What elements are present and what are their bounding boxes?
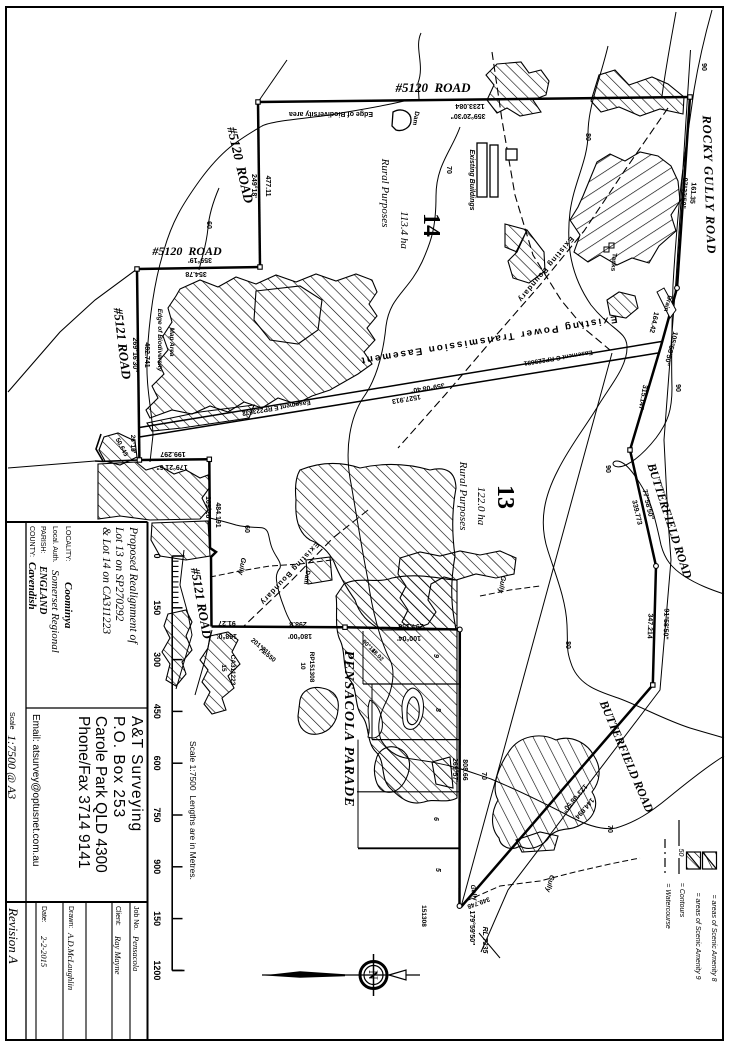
svg-text:180°00': 180°00'	[288, 632, 312, 640]
svg-text:= Contours: = Contours	[678, 883, 685, 918]
svg-text:LOCALITY:: LOCALITY:	[64, 526, 71, 561]
svg-text:50: 50	[677, 849, 684, 857]
svg-text:Scale 1:7500 Lengths are in M: Scale 1:7500 Lengths are in Metres.	[188, 741, 198, 880]
svg-text:RL 7335: RL 7335	[481, 927, 488, 954]
svg-text:249°18': 249°18'	[250, 174, 258, 198]
svg-text:750: 750	[152, 807, 162, 822]
svg-text:& Lot 14 on CA311223: & Lot 14 on CA311223	[100, 527, 112, 634]
svg-text:= areas of Scenic Amenity 8: = areas of Scenic Amenity 8	[710, 894, 717, 981]
svg-text:14: 14	[418, 213, 444, 237]
svg-text:70: 70	[606, 825, 613, 833]
svg-text:PENSACOLA PARADE: PENSACOLA PARADE	[341, 651, 356, 808]
svg-text:A.D.McLaughlin: A.D.McLaughlin	[66, 932, 76, 990]
svg-text:90: 90	[700, 63, 707, 71]
svg-text:Scale: Scale	[8, 712, 15, 730]
svg-text:Map Area: Map Area	[168, 327, 175, 356]
svg-text:179°59'50": 179°59'50"	[468, 910, 476, 945]
svg-text:150: 150	[152, 600, 162, 615]
svg-text:269°57': 269°57'	[451, 758, 459, 782]
svg-text:#5120 ROAD: #5120 ROAD	[151, 244, 222, 258]
svg-text:5: 5	[434, 868, 441, 872]
svg-text:100°04': 100°04'	[397, 634, 421, 642]
svg-text:70: 70	[480, 772, 487, 780]
svg-text:298.8: 298.8	[289, 620, 307, 627]
svg-text:Phone/Fax 3714 9141: Phone/Fax 3714 9141	[75, 716, 92, 869]
svg-text:RP151308: RP151308	[308, 652, 315, 683]
svg-text:Email: atsurvey@optusnet.com.a: Email: atsurvey@optusnet.com.au	[30, 714, 41, 866]
svg-text:Drawn:: Drawn:	[67, 906, 74, 928]
svg-text:482.741: 482.741	[143, 342, 150, 367]
svg-text:1:7500 @ A3: 1:7500 @ A3	[5, 735, 19, 799]
svg-text:Ray Mayne: Ray Mayne	[113, 935, 123, 975]
svg-text:9: 9	[432, 654, 439, 658]
svg-text:60: 60	[205, 221, 212, 229]
svg-text:122.0 ha: 122.0 ha	[475, 487, 487, 526]
svg-text:900: 900	[152, 859, 162, 874]
svg-text:Carole Park QLD 4300: Carole Park QLD 4300	[92, 716, 109, 873]
svg-text:90: 90	[604, 465, 611, 473]
svg-text:150: 150	[152, 911, 162, 926]
svg-text:199.297: 199.297	[160, 450, 185, 457]
svg-text:294.156: 294.156	[398, 622, 423, 629]
svg-text:CA311223: CA311223	[229, 655, 236, 686]
svg-text:Somerset Regional: Somerset Regional	[49, 570, 61, 653]
svg-text:90: 90	[674, 384, 681, 392]
svg-text:60: 60	[243, 525, 250, 533]
svg-text:26°19': 26°19'	[129, 435, 137, 454]
svg-text:Proposed Realignment of: Proposed Realignment of	[127, 526, 139, 645]
svg-text:15: 15	[220, 664, 227, 672]
svg-text:151308: 151308	[420, 905, 427, 927]
svg-text:808.66: 808.66	[461, 759, 468, 781]
svg-text:80: 80	[584, 133, 591, 141]
svg-text:P.O. Box 253: P.O. Box 253	[110, 716, 127, 818]
svg-text:= Watercourse: = Watercourse	[664, 883, 671, 929]
svg-text:Cavendish: Cavendish	[26, 562, 38, 610]
svg-text:13: 13	[492, 485, 518, 509]
svg-text:600: 600	[152, 756, 162, 771]
svg-text:91.27: 91.27	[218, 619, 236, 626]
svg-text:359°19': 359°19'	[188, 256, 212, 264]
svg-text:Job No.: Job No.	[132, 906, 139, 930]
svg-text:168°0': 168°0'	[217, 632, 237, 640]
svg-text:Coominya: Coominya	[62, 582, 74, 629]
svg-text:Edge of Biodiversity area: Edge of Biodiversity area	[289, 110, 373, 117]
svg-text:Rural Purposes: Rural Purposes	[379, 158, 391, 228]
svg-text:Lot 13 on SP270292: Lot 13 on SP270292	[113, 526, 125, 621]
svg-text:PARISH:: PARISH:	[39, 526, 46, 554]
svg-text:A&T Surveying: A&T Surveying	[128, 716, 145, 832]
svg-text:Date:: Date:	[40, 906, 47, 923]
svg-text:Pensacola: Pensacola	[131, 935, 141, 971]
svg-text:0: 0	[152, 553, 162, 558]
svg-text:179°21'6": 179°21'6"	[156, 463, 187, 471]
svg-text:Client:: Client:	[114, 906, 121, 926]
svg-text:161.35: 161.35	[688, 182, 696, 204]
svg-text:354.78: 354.78	[185, 270, 207, 277]
svg-text:Rural Purposes: Rural Purposes	[457, 461, 469, 531]
svg-text:80: 80	[564, 641, 571, 649]
svg-text:169°26': 169°26'	[204, 496, 212, 520]
svg-text:450: 450	[152, 704, 162, 719]
svg-text:Local. Auth.: Local. Auth.	[51, 526, 58, 563]
svg-text:113.4 ha: 113.4 ha	[398, 211, 410, 249]
svg-text:= areas of Scenic Amenity 9: = areas of Scenic Amenity 9	[694, 892, 701, 979]
svg-text:Revision A: Revision A	[6, 907, 21, 964]
svg-text:300: 300	[152, 652, 162, 667]
svg-text:347.214: 347.214	[646, 613, 654, 639]
svg-text:1233.084: 1233.084	[455, 102, 484, 109]
svg-text:484.191: 484.191	[214, 502, 221, 527]
svg-text:269°16'30": 269°16'30"	[131, 337, 139, 372]
svg-text:8: 8	[434, 708, 441, 712]
svg-text:#5120 ROAD: #5120 ROAD	[394, 80, 471, 95]
svg-text:359°20'30": 359°20'30"	[450, 112, 485, 120]
svg-text:Edge of Biodiversity: Edge of Biodiversity	[156, 309, 163, 372]
svg-text:477.11: 477.11	[264, 175, 271, 196]
svg-text:70: 70	[445, 166, 452, 174]
svg-text:COUNTY:: COUNTY:	[28, 526, 35, 557]
svg-text:Existing Buildings: Existing Buildings	[468, 149, 475, 210]
svg-text:6: 6	[432, 817, 439, 821]
svg-text:2-2-2015: 2-2-2015	[39, 936, 49, 967]
svg-text:91°58'50": 91°58'50"	[661, 608, 670, 639]
svg-text:10: 10	[299, 662, 306, 670]
svg-text:1200: 1200	[152, 960, 162, 980]
svg-text:N: N	[366, 970, 381, 980]
